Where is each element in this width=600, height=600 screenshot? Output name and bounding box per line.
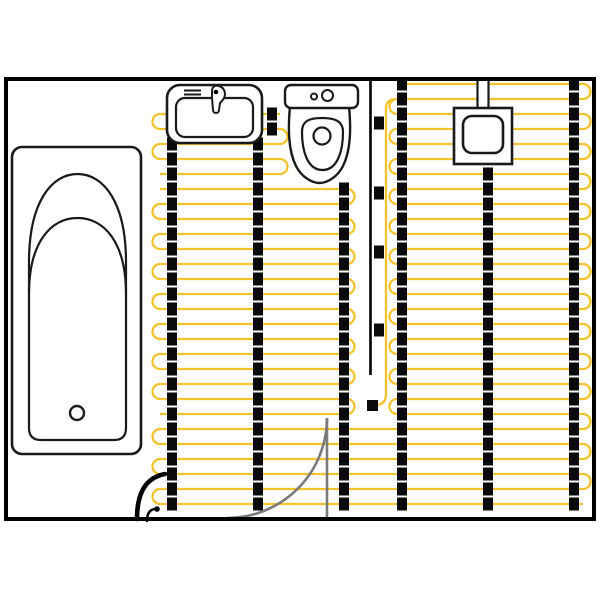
floor-plan-stage xyxy=(0,0,600,600)
toilet xyxy=(285,85,358,183)
bathtub xyxy=(12,147,141,454)
sink xyxy=(167,85,262,143)
floor-sensor-box xyxy=(454,77,512,164)
power-lead xyxy=(137,474,165,521)
floor-plan xyxy=(0,0,600,600)
